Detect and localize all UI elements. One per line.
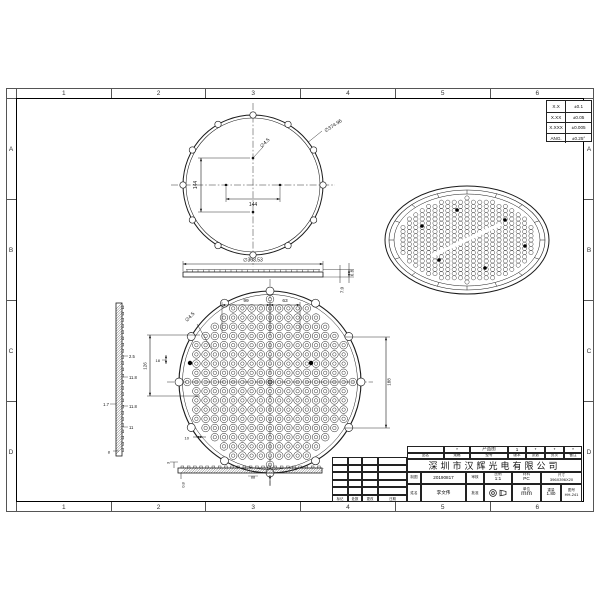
- drafter-name: 李文伟: [421, 484, 466, 502]
- dimension-label: 126: [143, 362, 148, 370]
- dimension-label: ∅4.5: [184, 311, 196, 324]
- rev-header-mark: 标记: [332, 495, 348, 503]
- dimension-label: 144: [193, 181, 199, 190]
- scale-value: 1:1: [495, 477, 501, 482]
- dimension-label: 8: [108, 450, 111, 455]
- lens-array-view: ∅4.599631261810188: [143, 279, 392, 486]
- material-value: PC: [523, 477, 529, 482]
- dimension-label: 99: [243, 298, 249, 304]
- bottom-section-view: 30.888: [166, 461, 324, 488]
- dimension-label: 2.5: [129, 354, 135, 359]
- dimension-label: 1.7: [103, 402, 109, 407]
- tolerance-table: X.X ±0.1 X.XX ±0.05 X.XXX ±0.005 ANG. ±0…: [546, 100, 592, 142]
- drawn-by-label: 制图: [407, 472, 421, 485]
- dimension-label: 3: [166, 461, 171, 464]
- dimension-label: 7.0: [340, 286, 345, 293]
- rev-header-change: 更改: [362, 495, 378, 503]
- dimension-label: 63: [282, 298, 288, 304]
- tolerance-row: ANG. ±0.25°: [547, 133, 591, 144]
- dimension-label: 0.8: [181, 481, 186, 487]
- dimension-label: ∅4.5: [259, 137, 271, 149]
- dimension-label: 11.8: [129, 404, 138, 409]
- rev-header-date: 日期: [378, 495, 407, 503]
- dimension-label: 6.8: [350, 269, 355, 276]
- drawing-number-value: HH-241: [565, 493, 579, 497]
- tolerance-key: X.XX: [547, 113, 566, 123]
- tolerance-row: X.XX ±0.05: [547, 112, 591, 123]
- weight-value: 1.80: [547, 492, 556, 497]
- dimension-label: 10: [185, 436, 190, 441]
- front-view: 144144∅4.5∅374.96: [171, 103, 344, 267]
- tolerance-value: ±0.25°: [566, 134, 591, 144]
- tolerance-value: ±0.1: [566, 101, 591, 112]
- dimension-label: 11: [129, 425, 134, 430]
- drawing-sheet: 1 2 3 4 5 6 1 2 3 4 5 6 A B C D A B C D …: [0, 0, 600, 600]
- company-name: 深圳市汉辉光电有限公司: [407, 459, 582, 472]
- isometric-view: [385, 186, 549, 294]
- size-value: 396X396X20: [550, 478, 573, 482]
- dimension-label: ∅374.96: [324, 118, 344, 134]
- tolerance-key: ANG.: [547, 134, 566, 144]
- tolerance-value: ±0.005: [566, 123, 591, 133]
- drawing-views-canvas: 144144∅4.5∅374.96∅363.536.87.0∅4.5996312…: [0, 0, 600, 600]
- name-label: 姓名: [407, 484, 421, 502]
- approved-label: 批准: [466, 484, 484, 502]
- dimension-label: 18: [156, 358, 161, 363]
- dimension-label: 144: [249, 202, 258, 208]
- dimension-label: 188: [387, 378, 392, 386]
- dimension-label: ∅363.53: [243, 258, 263, 264]
- unit-value: mm: [521, 491, 532, 498]
- checked-label: 审核: [466, 472, 484, 485]
- drawing-date: 20190817: [421, 472, 466, 485]
- tolerance-row: X.XXX ±0.005: [547, 122, 591, 133]
- tolerance-key: X.X: [547, 101, 566, 112]
- third-angle-projection-icon: [488, 488, 508, 498]
- rev-header-count: 处数: [348, 495, 362, 503]
- dimension-label: 11.8: [129, 375, 138, 380]
- tolerance-value: ±0.05: [566, 113, 591, 123]
- tolerance-row: X.X ±0.1: [547, 101, 591, 112]
- left-section-view: 2.511.811.81.7118: [103, 303, 137, 456]
- tolerance-key: X.XXX: [547, 123, 566, 133]
